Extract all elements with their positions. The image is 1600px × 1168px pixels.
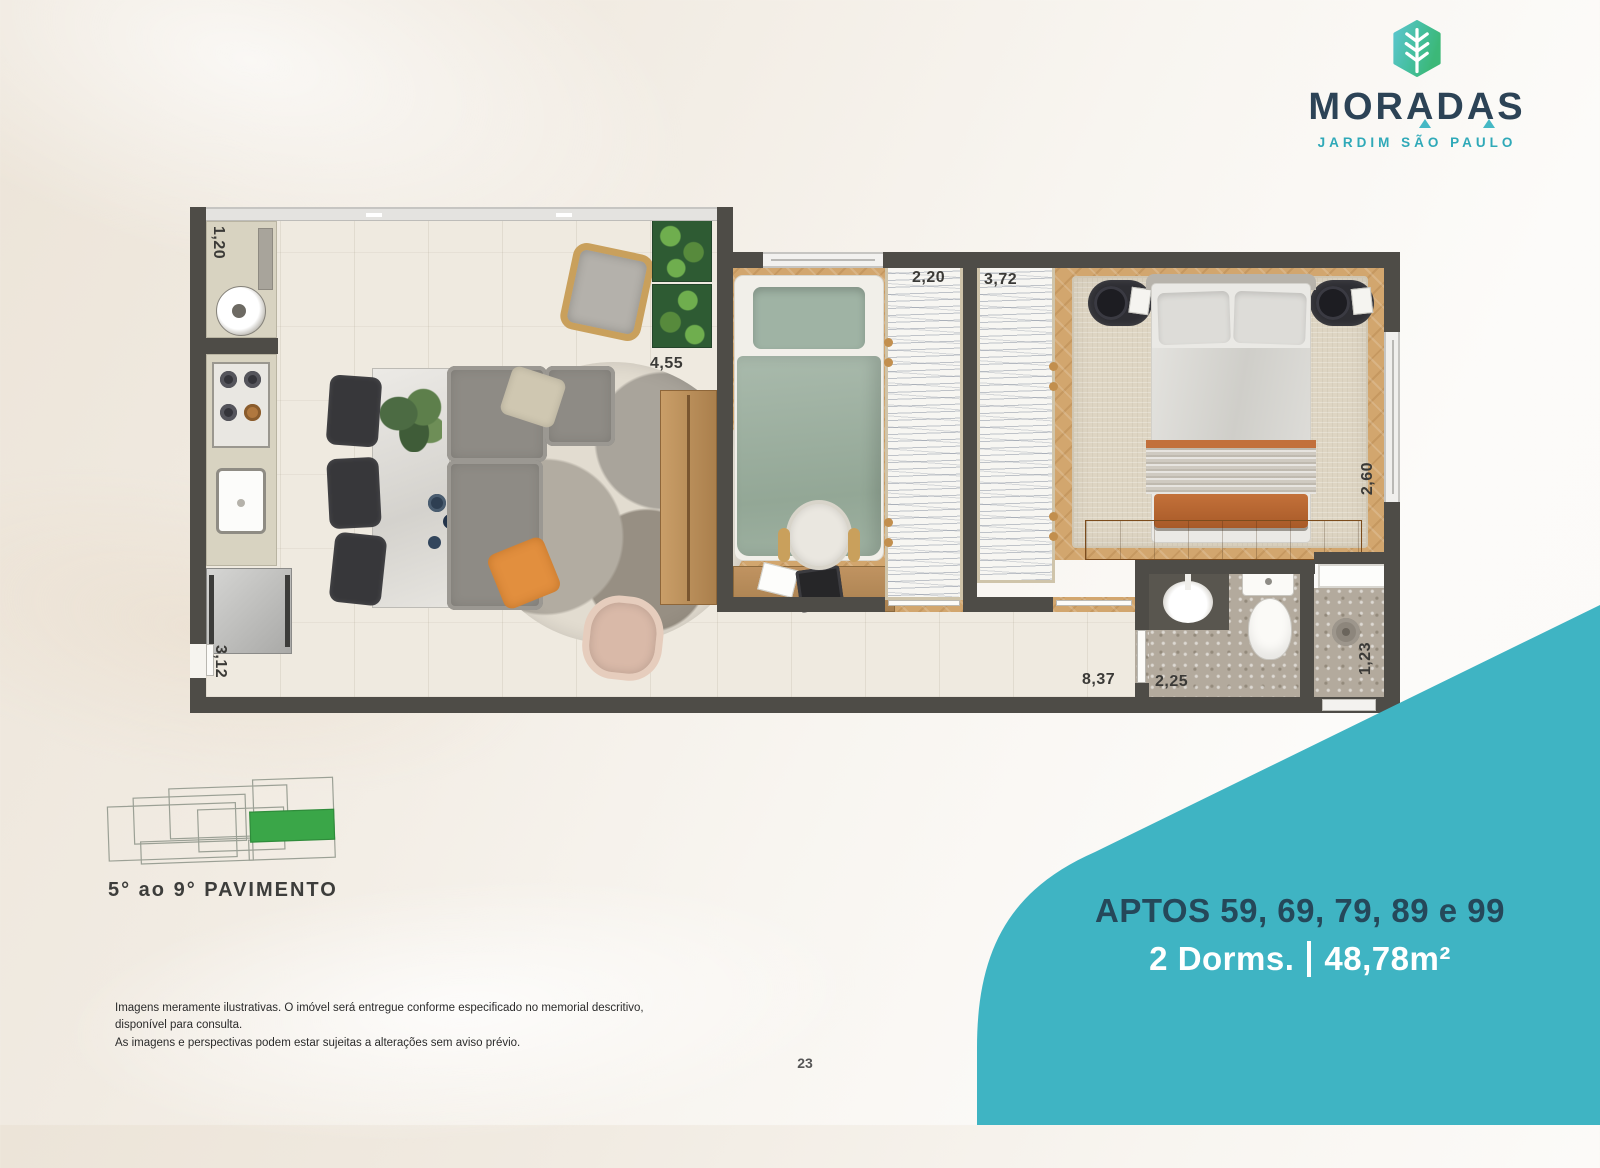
- planter-box: [652, 284, 712, 348]
- hall-floor: [717, 612, 1135, 697]
- closet-knob: [1049, 512, 1058, 521]
- keyplan-label: 5° ao 9° PAVIMENTO: [108, 879, 360, 902]
- wall-service-divider: [190, 338, 278, 354]
- leaf-hexagon-icon: [1390, 20, 1444, 78]
- shower-door-overlay: [1322, 699, 1376, 711]
- sideboard-groove: [687, 395, 690, 601]
- bathroom-faucet: [1185, 574, 1191, 590]
- laundry-faucet: [232, 304, 246, 318]
- stove: [212, 362, 270, 448]
- closet-knob: [1049, 362, 1058, 371]
- burner: [244, 371, 261, 388]
- dining-chair: [326, 374, 383, 447]
- wall-bathroom-left-lower: [1135, 683, 1149, 697]
- window-mullion: [366, 213, 382, 217]
- window-glass-line: [1392, 340, 1394, 494]
- bedroom2-door-leaf: [1056, 600, 1132, 606]
- double-bed-pillow: [1233, 291, 1307, 345]
- window-bedroom2: [1384, 332, 1400, 502]
- unit-divider: [1307, 941, 1311, 977]
- toilet-bowl: [1248, 598, 1292, 660]
- wall-bedroom1-top-a: [733, 252, 763, 268]
- bathroom-vanity: [1149, 574, 1229, 630]
- disclaimer-line2: As imagens e perspectivas podem estar su…: [115, 1035, 655, 1052]
- shower-drain-cap: [1342, 628, 1350, 636]
- wall-shower-top: [1314, 552, 1400, 564]
- kitchen-sink-drain: [237, 499, 245, 507]
- burner: [220, 371, 237, 388]
- dim-hall-length: 8,37: [1082, 672, 1115, 688]
- table-bowl: [428, 536, 441, 549]
- disclaimer: Imagens meramente ilustrativas. O imóvel…: [115, 1000, 655, 1052]
- nightstand-card: [1351, 287, 1374, 315]
- shower-niche: [1318, 564, 1386, 588]
- wall-bathroom-top: [1135, 560, 1315, 574]
- page-number: 23: [780, 1055, 830, 1071]
- dining-chair: [326, 457, 382, 530]
- wall-mid-bottom: [963, 597, 1053, 612]
- dim-bedroom2-closet: 3,72: [984, 272, 1017, 288]
- double-bed-knit-blanket: [1146, 448, 1316, 494]
- table-bowl: [428, 494, 446, 512]
- dim-bedroom1-closet: 2,20: [912, 270, 945, 286]
- keyplan-sketch: [98, 771, 351, 875]
- wall-bedrooms-divider: [963, 252, 977, 612]
- window-living-top: [206, 207, 717, 221]
- brand-accent-triangle: [1419, 119, 1431, 128]
- entry-door-threshold: [190, 644, 206, 678]
- single-bed-pillow: [753, 287, 865, 349]
- window-bedroom1: [763, 252, 883, 268]
- double-bed-pillow: [1157, 291, 1231, 345]
- wall-right-lower: [1384, 502, 1400, 697]
- burner: [244, 404, 261, 421]
- brand-subtitle: JARDIM SÃO PAULO: [1307, 135, 1527, 150]
- dining-chair: [328, 531, 387, 606]
- dim-bedroom2-depth: 2,60: [1360, 462, 1376, 495]
- nightstand-tray: [1094, 286, 1128, 320]
- desk-chair-arm: [778, 528, 790, 562]
- desk-chair: [786, 500, 852, 570]
- closet-knob: [1049, 382, 1058, 391]
- dim-living-width: 4,55: [650, 356, 683, 372]
- bedroom1-door-leaf: [888, 600, 960, 606]
- window-mullion: [556, 213, 572, 217]
- brand-wordmark: MORADAS: [1307, 86, 1527, 129]
- refrigerator-handle: [209, 575, 214, 647]
- wall-bathroom-left-upper: [1135, 574, 1149, 630]
- laundry-shelf: [258, 228, 273, 290]
- wall-right-upper: [1384, 268, 1400, 332]
- toilet-button: [1265, 578, 1272, 585]
- closet-knob: [884, 518, 893, 527]
- burner: [220, 404, 237, 421]
- table-plant: [380, 388, 442, 452]
- disclaimer-line1: Imagens meramente ilustrativas. O imóvel…: [115, 1000, 655, 1035]
- wall-bath-shower-divider: [1300, 560, 1314, 697]
- nightstand-tray: [1316, 286, 1350, 320]
- brochure-page: { "logo": { "brand": "MORADAS", "subtitl…: [0, 0, 1600, 1125]
- bedroom2-closet: [977, 263, 1055, 583]
- logo: MORADAS JARDIM SÃO PAULO: [1307, 20, 1527, 150]
- dim-service-width: 1,20: [210, 226, 226, 259]
- closet-knob: [884, 358, 893, 367]
- wall-bottom: [190, 697, 1400, 713]
- wall-bedroom1-left: [717, 207, 733, 612]
- dim-entry-width: 3,12: [212, 645, 228, 678]
- window-glass-line: [771, 259, 875, 261]
- brand-accent-triangle: [1483, 119, 1495, 128]
- unit-title: APTOS 59, 69, 79, 89 e 99: [1040, 892, 1560, 930]
- dim-bathroom-width: 2,25: [1155, 674, 1188, 690]
- closet-knob: [1049, 532, 1058, 541]
- desk-chair-arm: [848, 528, 860, 562]
- nightstand: [1088, 280, 1152, 326]
- unit-dorms: 2 Dorms.: [1149, 940, 1294, 978]
- wall-bedroom1-bottom: [717, 597, 885, 612]
- tv-sideboard: [660, 390, 717, 605]
- kitchen-sink: [216, 468, 266, 534]
- nightstand: [1310, 280, 1374, 326]
- keyplan: 5° ao 9° PAVIMENTO: [100, 775, 360, 902]
- unit-specs: 2 Dorms. 48,78m²: [1040, 940, 1560, 978]
- closet-knob: [884, 538, 893, 547]
- shower-drain: [1332, 618, 1360, 646]
- dim-shower-width: 1,23: [1358, 642, 1374, 675]
- refrigerator: [206, 568, 292, 654]
- wall-bedroom1-top-b: [883, 252, 963, 268]
- wall-left: [190, 207, 206, 644]
- planter-box: [652, 216, 712, 282]
- bedroom1-closet: [885, 263, 963, 600]
- bathroom-door-leaf: [1137, 630, 1146, 683]
- unit-area: 48,78m²: [1324, 940, 1450, 978]
- unit-info: APTOS 59, 69, 79, 89 e 99 2 Dorms. 48,78…: [1040, 892, 1560, 978]
- closet-knob: [884, 338, 893, 347]
- refrigerator-handle: [285, 575, 290, 647]
- double-bed-sheet: [1152, 348, 1310, 444]
- double-bed-throw-edge: [1146, 440, 1316, 448]
- wall-bedroom2-top: [977, 252, 1400, 268]
- nightstand-card: [1128, 287, 1151, 316]
